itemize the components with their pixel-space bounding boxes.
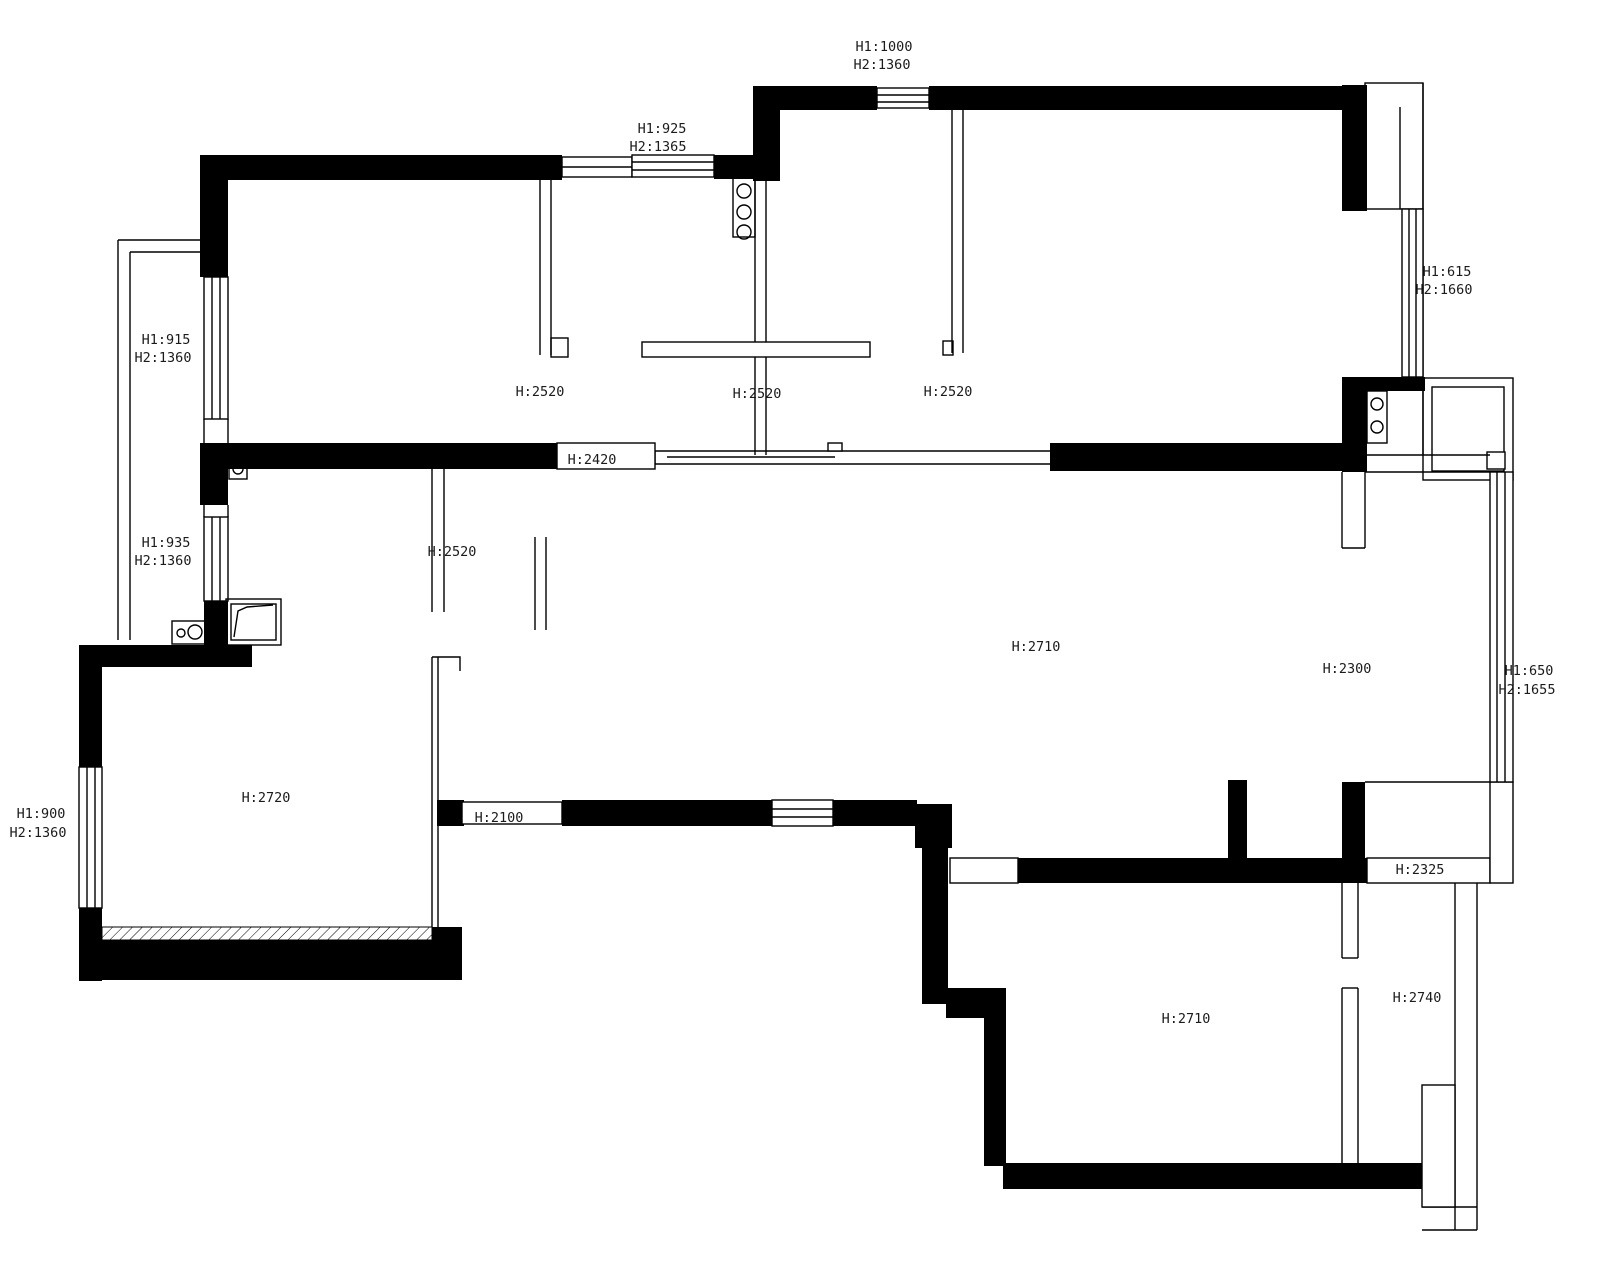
dim-room-bottom: H:2710 [1162,1011,1211,1027]
dim-win-left-up-h2: H2:1360 [135,350,192,366]
wall [1050,443,1365,471]
window-left-lower [79,767,102,908]
floor-plan: H1:1000 H2:1360 H1:925 H2:1365 H1:615 H2… [0,0,1600,1280]
dim-win-left-mid-h2: H2:1360 [135,553,192,569]
window-left-mid [204,517,228,601]
wall [1018,858,1230,883]
wall [204,601,228,647]
dim-door-balcony: H:2300 [1323,661,1372,677]
window-right-mid [1490,472,1513,782]
wall [79,645,102,767]
wall [200,443,557,469]
dim-win-kitchen-h1: H1:925 [638,121,687,137]
wall [753,86,877,110]
dim-door-bedroom2: H:2520 [924,384,973,400]
dim-opening-2325: H:2325 [1396,862,1445,878]
balcony-step [1422,1085,1455,1207]
window-living-bottom [772,800,833,826]
dim-win-right-mid-h2: H2:1655 [1499,682,1556,698]
dim-room-left-lower: H:2720 [242,790,291,806]
dim-door-bedroom1: H:2520 [516,384,565,400]
wall [984,1018,1006,1166]
wall [1342,782,1365,859]
windows-layer [79,88,1513,908]
dim-win-left-low-h1: H1:900 [17,806,66,822]
wall [1003,1163,1422,1189]
dim-win-kitchen-h2: H2:1365 [630,139,687,155]
floor-plan-drawing: H1:1000 H2:1360 H1:925 H2:1365 H1:615 H2… [0,0,1600,1280]
dim-win-top-h2: H2:1360 [854,57,911,73]
dim-door-hall: H:2520 [428,544,477,560]
balcony-outline [1365,83,1423,209]
wall [1228,780,1247,883]
wall [922,846,948,1004]
wall [915,804,952,848]
shower-tray-icon [226,599,281,645]
window-kitchen [632,155,714,177]
wall [200,155,228,277]
dim-win-left-low-h2: H2:1360 [10,825,67,841]
dim-win-right-mid-h1: H1:650 [1505,663,1554,679]
fixtures-layer [172,177,1387,645]
thin-lines-layer [118,83,1513,1230]
dim-win-right-up-h1: H1:615 [1423,264,1472,280]
wall [79,940,438,980]
dim-opening-2100: H:2100 [475,810,524,826]
door-jamb [828,443,842,451]
stove-icon [733,177,755,239]
dim-win-top-h1: H1:1000 [856,39,913,55]
dim-room-right-small: H:2740 [1393,990,1442,1006]
wall [946,988,1006,1018]
burner-icon [1367,391,1387,443]
dim-win-left-up-h1: H1:915 [142,332,191,348]
wall [1342,85,1367,211]
washer-icon [172,621,205,644]
dim-door-kitchen: H:2520 [733,386,782,402]
dim-win-left-mid-h1: H1:935 [142,535,191,551]
opening [1490,782,1513,883]
window-spacer [562,157,632,177]
wall [929,86,1365,110]
window-left-upper [204,277,228,419]
opening [950,858,1018,883]
wall [200,467,228,505]
wall [562,800,772,826]
wall [833,800,917,826]
wall [437,800,464,826]
dim-opening-2420: H:2420 [568,452,617,468]
wall [1247,858,1367,883]
wall [432,927,462,980]
wall [79,645,252,667]
wall [1342,377,1425,391]
dim-win-right-up-h2: H2:1660 [1416,282,1473,298]
dim-room-living: H:2710 [1012,639,1061,655]
sliding-door-track [642,342,870,357]
hatch-strip [102,927,432,940]
door-jamb [551,338,568,357]
wall [200,155,562,180]
door-jamb [432,657,460,671]
window-top [877,88,929,108]
